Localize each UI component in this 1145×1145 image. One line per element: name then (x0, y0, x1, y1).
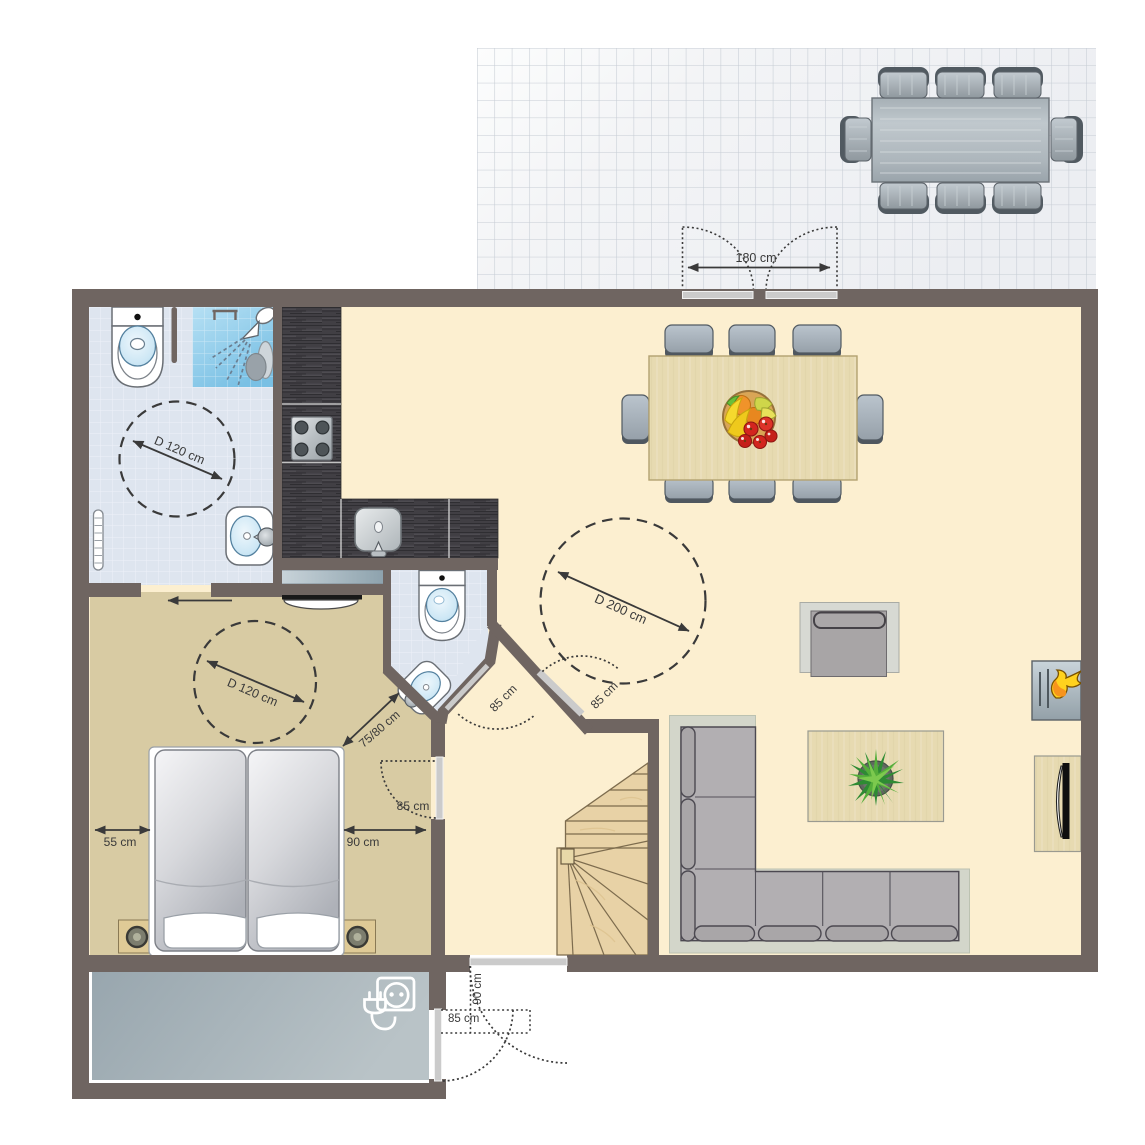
svg-text:90 cm: 90 cm (472, 973, 484, 1004)
svg-text:85 cm: 85 cm (397, 799, 430, 813)
svg-text:180 cm: 180 cm (736, 251, 777, 265)
svg-text:90 cm: 90 cm (347, 835, 380, 849)
svg-text:85 cm: 85 cm (448, 1013, 479, 1025)
svg-text:55 cm: 55 cm (104, 835, 137, 849)
